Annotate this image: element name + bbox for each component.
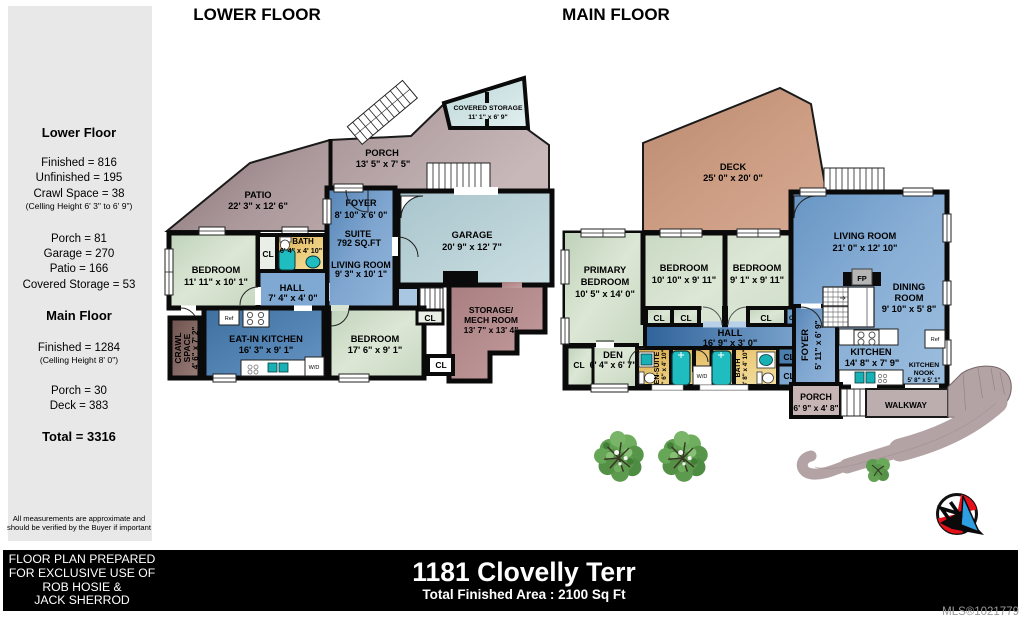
svg-text:Crawl Space = 38: Crawl Space = 38	[33, 188, 124, 200]
svg-text:PORCH: PORCH	[800, 392, 832, 402]
svg-text:7' 6" x 4' 10": 7' 6" x 4' 10"	[661, 350, 668, 387]
svg-text:9' 1" x 9' 11": 9' 1" x 9' 11"	[730, 275, 784, 285]
svg-text:11' 11" x 10' 1": 11' 11" x 10' 1"	[184, 277, 248, 287]
svg-text:JACK SHERROD: JACK SHERROD	[34, 593, 130, 607]
svg-text:should be verified by the Buye: should be verified by the Buyer if impor…	[7, 523, 152, 532]
svg-text:DEN: DEN	[603, 350, 623, 360]
svg-text:FOYER: FOYER	[800, 329, 810, 361]
svg-text:11' 1" x 6' 9": 11' 1" x 6' 9"	[468, 114, 508, 121]
svg-text:FOR EXCLUSIVE USE OF: FOR EXCLUSIVE USE OF	[9, 566, 155, 580]
svg-text:GARAGE: GARAGE	[452, 230, 493, 240]
svg-text:8' 8" x 4' 10": 8' 8" x 4' 10"	[742, 350, 749, 387]
svg-text:COVERED STORAGE: COVERED STORAGE	[454, 105, 523, 112]
svg-text:Main Floor: Main Floor	[46, 308, 112, 323]
svg-text:LIVING ROOM: LIVING ROOM	[834, 231, 897, 241]
svg-text:5' 8" x 5' 1": 5' 8" x 5' 1"	[908, 377, 941, 384]
svg-text:13' 5" x 7' 5": 13' 5" x 7' 5"	[356, 159, 411, 169]
svg-text:8' 10" x 6' 0": 8' 10" x 6' 0"	[335, 210, 388, 220]
svg-text:PORCH: PORCH	[365, 148, 399, 158]
svg-text:BEDROOM: BEDROOM	[581, 277, 630, 287]
svg-text:BEDROOM: BEDROOM	[351, 334, 400, 344]
svg-text:W/D: W/D	[697, 374, 708, 380]
svg-text:CL: CL	[435, 360, 446, 370]
svg-text:7' 4" x 4' 0": 7' 4" x 4' 0"	[268, 293, 317, 303]
svg-text:21' 0" x 12' 10": 21' 0" x 12' 10"	[833, 243, 898, 253]
svg-text:Total = 3316: Total = 3316	[42, 429, 116, 444]
svg-text:CL: CL	[680, 313, 691, 323]
svg-text:(Celling Height 8' 0"): (Celling Height 8' 0")	[40, 355, 118, 365]
svg-text:LOWER FLOOR: LOWER FLOOR	[193, 5, 320, 24]
svg-text:MLS®1021779: MLS®1021779	[942, 606, 1019, 618]
svg-text:9' 10" x 5' 8": 9' 10" x 5' 8"	[882, 304, 937, 314]
svg-text:MECH ROOM: MECH ROOM	[464, 315, 518, 325]
svg-text:Patio = 166: Patio = 166	[50, 263, 109, 275]
svg-text:PRIMARY: PRIMARY	[584, 265, 627, 275]
svg-text:PATIO: PATIO	[244, 190, 271, 200]
svg-text:CL: CL	[573, 360, 584, 370]
svg-text:10' 10" x 9' 11": 10' 10" x 9' 11"	[652, 275, 716, 285]
svg-text:EAT-IN KITCHEN: EAT-IN KITCHEN	[229, 334, 303, 344]
svg-text:4' 6" x 7' 2": 4' 6" x 7' 2"	[191, 327, 200, 370]
svg-text:Porch = 30: Porch = 30	[51, 385, 107, 397]
svg-text:CL: CL	[760, 313, 771, 323]
svg-text:BEDROOM: BEDROOM	[660, 263, 709, 273]
svg-text:ROB HOSIE &: ROB HOSIE &	[42, 580, 121, 594]
svg-text:1181 Clovelly Terr: 1181 Clovelly Terr	[412, 557, 635, 587]
svg-text:16' 3" x 9' 1": 16' 3" x 9' 1"	[239, 345, 294, 355]
svg-text:Deck = 383: Deck = 383	[50, 400, 109, 412]
svg-text:CL: CL	[262, 249, 273, 259]
svg-text:Lower Floor: Lower Floor	[42, 125, 116, 140]
svg-text:FP: FP	[857, 274, 867, 283]
svg-text:EN-SUITE: EN-SUITE	[654, 351, 661, 384]
svg-text:Unfinished = 195: Unfinished = 195	[36, 172, 123, 184]
svg-text:14' 8" x 7' 9": 14' 8" x 7' 9"	[845, 358, 900, 368]
svg-text:BATH: BATH	[292, 237, 314, 246]
svg-text:6' 9" x 4' 8": 6' 9" x 4' 8"	[793, 403, 838, 413]
svg-text:W/D: W/D	[309, 365, 320, 371]
svg-text:ROOM: ROOM	[895, 293, 924, 303]
svg-text:6' 4" x 4' 10": 6' 4" x 4' 10"	[280, 246, 322, 255]
svg-text:MAIN FLOOR: MAIN FLOOR	[562, 5, 670, 24]
svg-text:BEDROOM: BEDROOM	[733, 263, 782, 273]
svg-text:792 SQ.FT: 792 SQ.FT	[337, 238, 382, 248]
svg-text:9' 3" x 10' 1": 9' 3" x 10' 1"	[335, 269, 387, 279]
svg-text:25' 0" x 20' 0": 25' 0" x 20' 0"	[703, 173, 763, 183]
svg-text:All measurements are approxima: All measurements are approximate and	[13, 514, 146, 523]
svg-text:Garage = 270: Garage = 270	[44, 248, 115, 260]
svg-text:DINING: DINING	[893, 282, 926, 292]
svg-text:17' 6" x 9' 1": 17' 6" x 9' 1"	[348, 345, 403, 355]
svg-text:HALL: HALL	[718, 328, 743, 338]
svg-text:(Celling Height 6' 3" to 6' 9": (Celling Height 6' 3" to 6' 9")	[26, 201, 133, 211]
svg-text:HALL: HALL	[280, 283, 305, 293]
svg-text:DECK: DECK	[720, 162, 747, 172]
svg-text:Total Finished Area : 2100 Sq: Total Finished Area : 2100 Sq Ft	[422, 587, 626, 602]
svg-text:KITCHEN: KITCHEN	[909, 362, 939, 369]
svg-text:Finished = 816: Finished = 816	[41, 157, 117, 169]
svg-text:Ref: Ref	[931, 337, 940, 343]
svg-text:WALKWAY: WALKWAY	[885, 401, 928, 410]
svg-text:Covered Storage = 53: Covered Storage = 53	[23, 279, 136, 291]
svg-text:Finished = 1284: Finished = 1284	[38, 342, 121, 354]
svg-text:Porch = 81: Porch = 81	[51, 233, 107, 245]
svg-text:10' 5" x 14' 0": 10' 5" x 14' 0"	[575, 289, 635, 299]
svg-text:NOOK: NOOK	[914, 370, 934, 377]
svg-text:20' 9" x 12' 7": 20' 9" x 12' 7"	[442, 242, 502, 252]
svg-text:STORAGE/: STORAGE/	[469, 305, 514, 315]
svg-text:FLOOR PLAN PREPARED: FLOOR PLAN PREPARED	[9, 552, 156, 566]
svg-text:CL: CL	[653, 313, 664, 323]
svg-text:Ref: Ref	[225, 316, 234, 322]
svg-text:BATH: BATH	[735, 359, 742, 378]
svg-text:BEDROOM: BEDROOM	[192, 265, 241, 275]
svg-text:CL: CL	[424, 313, 435, 323]
svg-text:KITCHEN: KITCHEN	[850, 347, 892, 357]
svg-text:13' 7" x 13' 4": 13' 7" x 13' 4"	[464, 325, 519, 335]
svg-text:22' 3" x 12' 6": 22' 3" x 12' 6"	[228, 201, 288, 211]
